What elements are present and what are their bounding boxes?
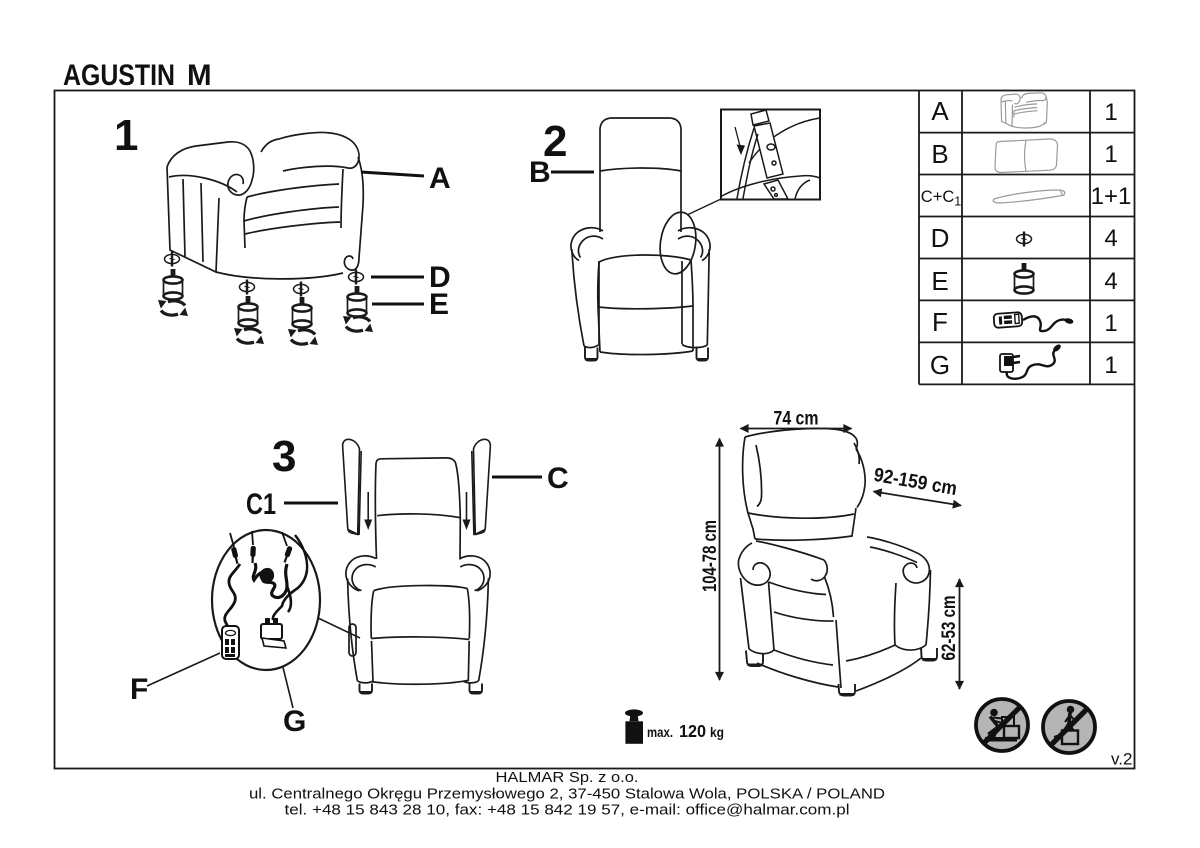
svg-text:A: A (429, 162, 451, 195)
svg-text:HALMAR Sp. z o.o.: HALMAR Sp. z o.o. (496, 770, 639, 786)
svg-text:kg: kg (710, 724, 724, 740)
svg-text:1: 1 (1104, 310, 1117, 337)
svg-text:1+1: 1+1 (1091, 183, 1132, 210)
svg-text:E: E (429, 288, 449, 321)
svg-text:4: 4 (1104, 268, 1117, 295)
svg-text:62-53 cm: 62-53 cm (938, 596, 960, 661)
svg-text:max.: max. (647, 724, 673, 740)
svg-text:AGUSTIN: AGUSTIN (63, 59, 175, 92)
svg-text:G: G (930, 350, 950, 380)
svg-text:ul. Centralnego Okręgu Przemys: ul. Centralnego Okręgu Przemysłowego 2, … (249, 787, 885, 803)
svg-text:v.2: v.2 (1111, 750, 1132, 769)
svg-text:F: F (130, 673, 148, 706)
svg-text:B: B (931, 139, 948, 169)
svg-text:M: M (187, 59, 212, 92)
svg-text:E: E (931, 266, 948, 296)
svg-text:A: A (931, 96, 949, 126)
svg-text:1: 1 (114, 111, 138, 160)
svg-text:G: G (283, 705, 306, 738)
svg-text:104-78 cm: 104-78 cm (699, 520, 721, 592)
svg-text:1: 1 (1104, 141, 1117, 168)
svg-text:C1: C1 (246, 488, 276, 521)
svg-text:120: 120 (679, 721, 706, 741)
svg-text:1: 1 (1104, 99, 1117, 126)
svg-text:D: D (931, 223, 950, 253)
svg-text:74 cm: 74 cm (774, 408, 819, 430)
svg-text:B: B (529, 156, 551, 189)
svg-text:tel. +48 15 843 28 10, fax: +4: tel. +48 15 843 28 10, fax: +48 15 842 1… (285, 803, 850, 819)
svg-text:F: F (932, 307, 948, 337)
svg-text:4: 4 (1104, 225, 1117, 252)
svg-text:1: 1 (1104, 352, 1117, 379)
svg-text:C: C (547, 462, 569, 495)
svg-text:3: 3 (272, 432, 296, 481)
